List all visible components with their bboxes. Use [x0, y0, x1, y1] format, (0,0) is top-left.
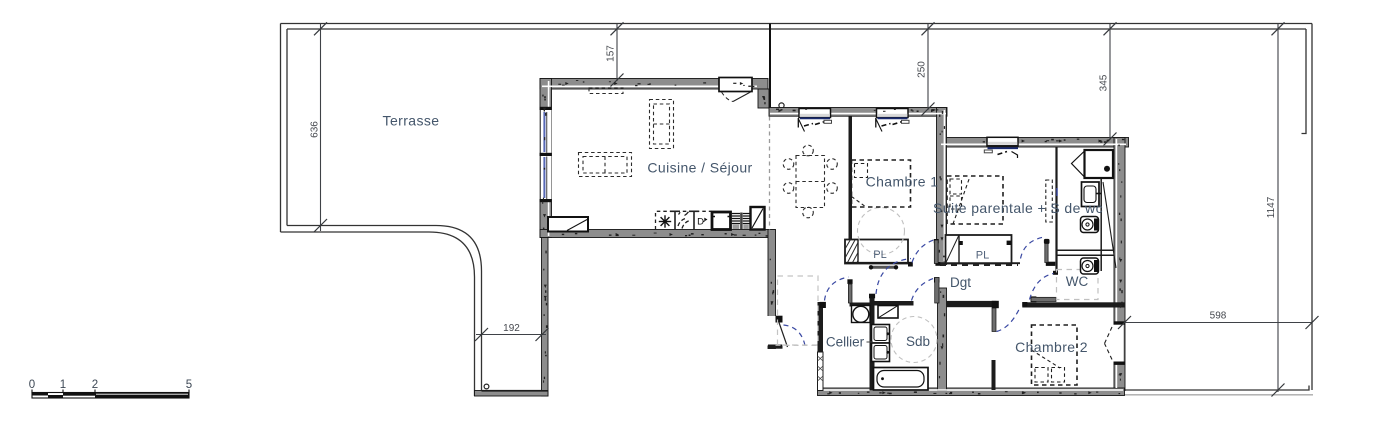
svg-text:Dgt: Dgt	[950, 275, 971, 290]
svg-text:PL: PL	[976, 250, 989, 262]
svg-text:157: 157	[606, 45, 617, 62]
svg-text:636: 636	[310, 121, 321, 138]
svg-text:598: 598	[1210, 311, 1227, 322]
svg-text:Sdb: Sdb	[906, 334, 930, 349]
svg-text:Cellier: Cellier	[826, 335, 865, 350]
svg-text:Cuisine / Séjour: Cuisine / Séjour	[647, 160, 752, 176]
svg-text:0: 0	[29, 379, 35, 391]
svg-text:Chambre 2: Chambre 2	[1015, 339, 1088, 355]
svg-text:250: 250	[917, 61, 928, 78]
svg-text:PL: PL	[873, 249, 886, 261]
svg-text:Terrasse: Terrasse	[383, 113, 440, 129]
svg-text:1: 1	[60, 379, 66, 391]
svg-text:Suite parentale + S de wc: Suite parentale + S de wc	[933, 200, 1103, 216]
svg-text:1147: 1147	[1266, 196, 1277, 218]
svg-text:345: 345	[1099, 74, 1110, 91]
svg-text:2: 2	[92, 379, 98, 391]
svg-text:WC: WC	[1066, 274, 1089, 289]
svg-text:5: 5	[186, 379, 192, 391]
svg-text:D: D	[697, 217, 704, 228]
svg-text:192: 192	[503, 323, 520, 334]
svg-text:Chambre 1: Chambre 1	[866, 174, 939, 190]
